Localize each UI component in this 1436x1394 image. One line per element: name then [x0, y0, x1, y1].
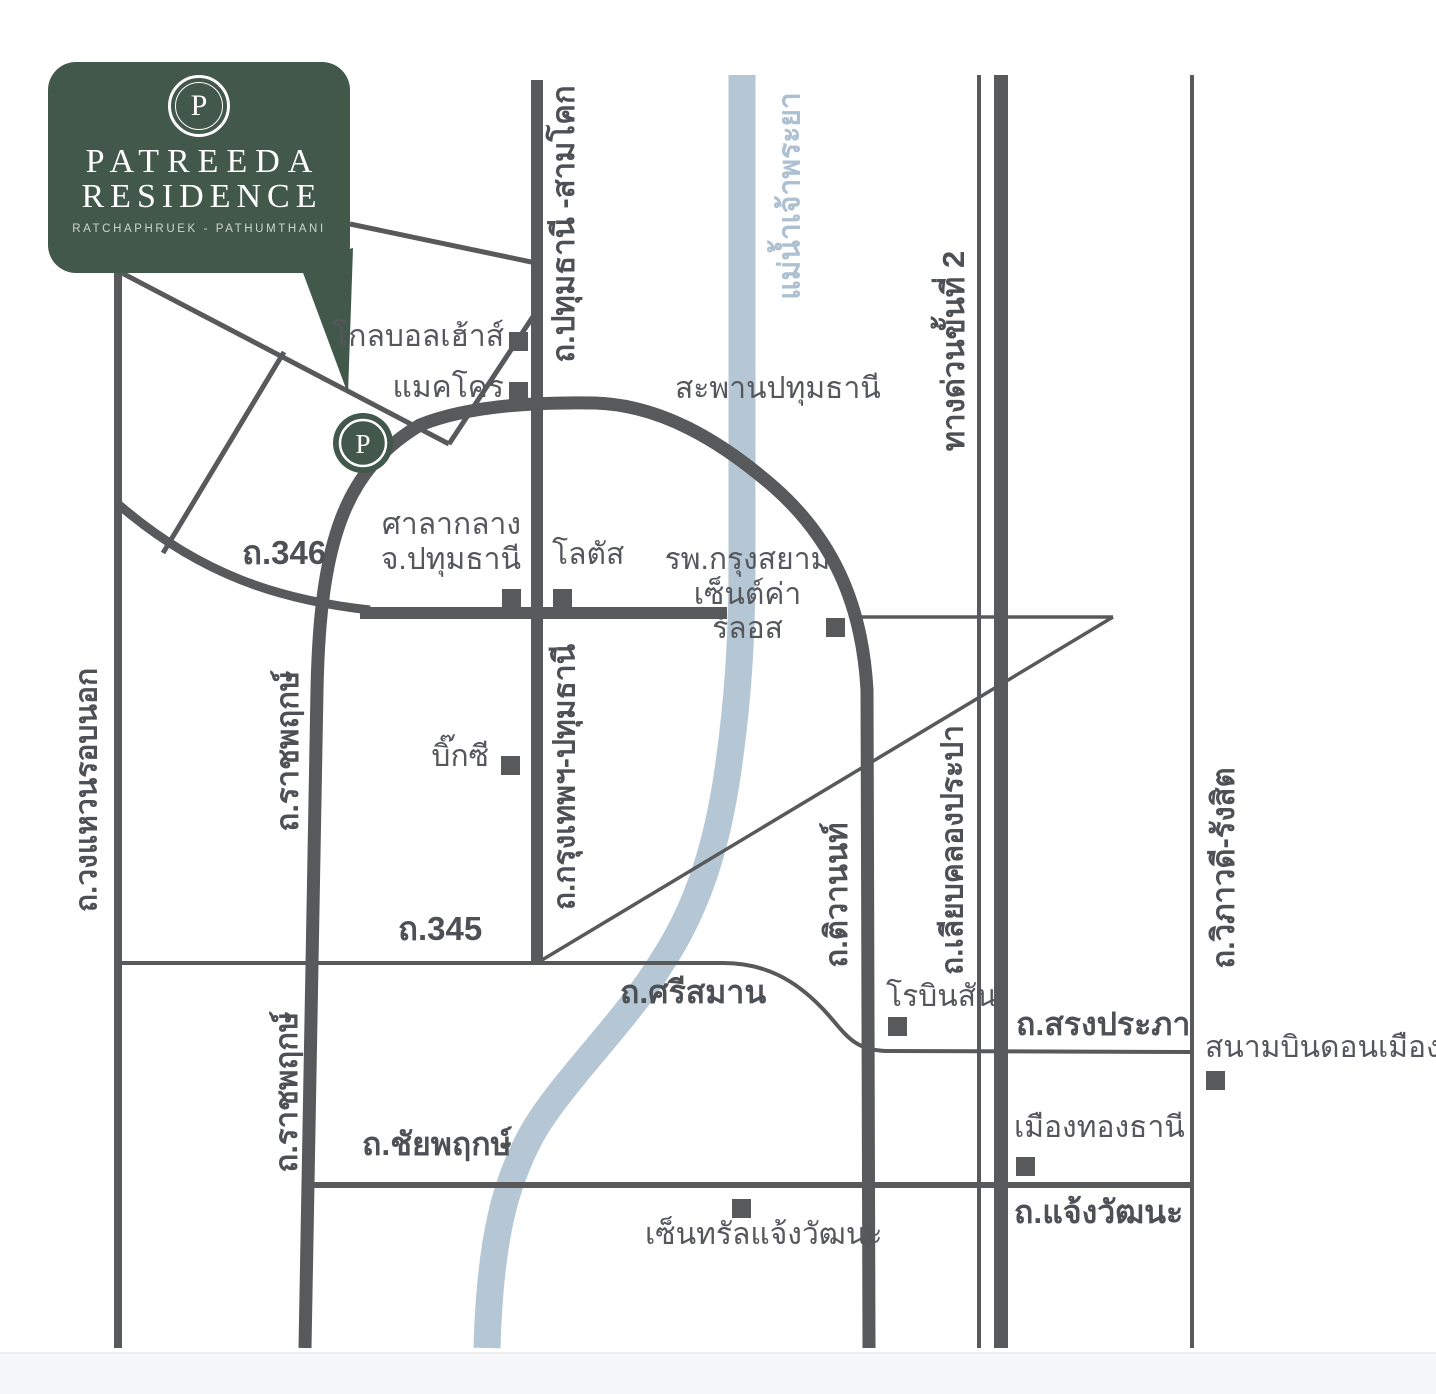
city-hall-marker	[502, 589, 521, 608]
page-bottom-edge	[0, 1352, 1436, 1394]
label-road-srisaman: ถ.ศรีสมาน	[620, 974, 766, 1011]
robinson-marker	[888, 1017, 907, 1036]
label-road-krungthep-pathumthani: ถ.กรุงเทพฯ-ปทุมธานี	[542, 644, 589, 910]
label-hospital-line2: เซ็นต์ค่าร์ลอส	[694, 578, 802, 646]
brand-name-line1: PATREEDA	[78, 145, 321, 179]
global-house-marker	[509, 332, 528, 351]
label-expressway-stage2: ทางด่วนขั้นที่ 2	[928, 251, 978, 451]
label-road-liab-khlong-prapa: ถ.เลียบคลองประปา	[930, 725, 977, 975]
big-c-marker	[501, 756, 520, 775]
makro-marker	[509, 382, 528, 401]
road-diagonal-b	[163, 352, 284, 553]
label-city-hall-line1: ศาลากลาง	[382, 508, 521, 541]
label-makro: แมคโคร	[393, 371, 504, 406]
label-road-pathumthani-samkhok: ถ.ปทุมธานี -สามโคก	[538, 85, 588, 362]
label-central-chaengwatthana: เซ็นทรัลแจ้งวัฒนะ	[645, 1218, 883, 1253]
label-lotus: โลตัส	[552, 538, 624, 573]
lotus-marker	[553, 589, 572, 608]
label-pathumthani-bridge: สะพานปทุมธานี	[675, 372, 881, 407]
central-chaengwatthana-marker	[732, 1199, 751, 1218]
brand-monogram-letter: P	[175, 82, 223, 130]
label-city-hall-line2: จ.ปทุมธานี	[381, 543, 521, 576]
label-road-viphavadi-rangsit: ถ.วิภาวดี-รังสิต	[1198, 767, 1248, 968]
label-road-chaiyaphruek: ถ.ชัยพฤกษ์	[362, 1126, 512, 1163]
brand-subtitle: RATCHAPHRUEK - PATHUMTHANI	[72, 223, 326, 235]
don-mueang-marker	[1206, 1071, 1225, 1090]
brand-name-line2: RESIDENCE	[76, 179, 323, 215]
road-diagonal-a3	[350, 224, 536, 263]
label-big-c: บิ๊กซี	[431, 740, 489, 775]
label-chao-phraya-river: แม่น้ำเจ้าพระยา	[767, 92, 814, 300]
project-marker-monogram: P	[355, 429, 370, 459]
label-road-346: ถ.346	[242, 534, 326, 572]
chao-phraya-river	[487, 75, 742, 1348]
label-road-outer-ring: ถ.วงแหวนรอบนอก	[64, 668, 111, 912]
label-road-tiwanon: ถ.ติวานนท์	[811, 822, 861, 967]
label-don-mueang-airport: สนามบินดอนเมือง	[1205, 1031, 1436, 1066]
label-road-ratchaphruek-lower: ถ.ราชพฤกษ์	[261, 1012, 311, 1173]
brand-logo-bubble: P PATREEDA RESIDENCE RATCHAPHRUEK - PATH…	[48, 62, 350, 273]
label-road-chaengwatthana: ถ.แจ้งวัฒนะ	[1014, 1194, 1183, 1231]
label-road-ratchaphruek-upper: ถ.ราชพฤกษ์	[262, 671, 312, 832]
label-road-songprapha: ถ.สรงประภา	[1016, 1006, 1190, 1043]
project-location-marker: P	[333, 413, 393, 473]
brand-monogram-circle-icon: P	[168, 75, 230, 137]
label-muang-thong-thani: เมืองทองธานี	[1014, 1111, 1185, 1146]
label-hospital-line1: รพ.กรุงสยาม	[665, 543, 831, 576]
muang-thong-marker	[1016, 1157, 1035, 1176]
location-map: P P PATREEDA RESIDENCE RATCHAPHRUEK - PA…	[0, 0, 1436, 1394]
label-road-345: ถ.345	[398, 910, 482, 948]
label-global-house: โกลบอลเฮ้าส์	[332, 320, 504, 355]
label-robinson: โรบินสัน	[886, 980, 997, 1015]
